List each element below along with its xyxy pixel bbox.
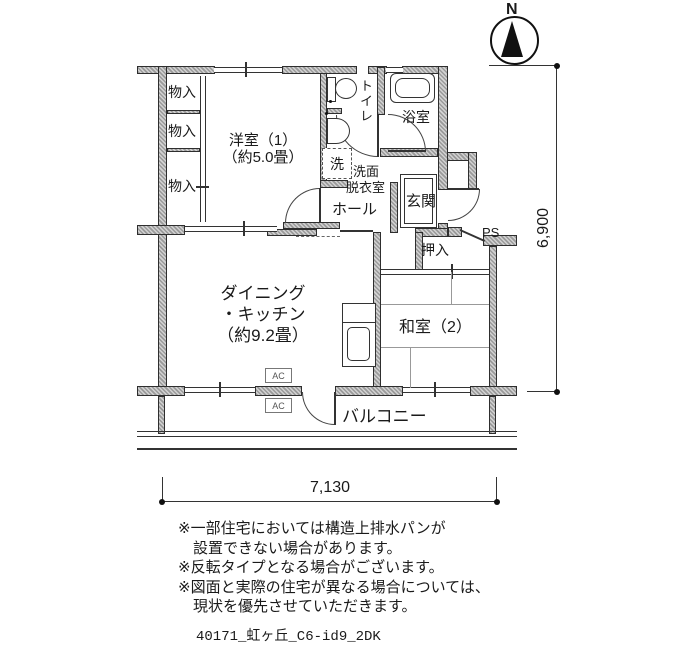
note-line: ※図面と実際の住宅が異なる場合については、 [178,578,490,598]
dk-line1: ダイニング [203,283,323,304]
note-line: ※反転タイプとなる場合がございます。 [178,558,490,578]
ac-lower-label: AC [272,401,285,411]
note-line: 現状を優先させていただきます。 [178,597,490,617]
entrance-label: 玄関 [406,193,436,210]
window-tick [245,62,247,77]
toilet-bowl [335,78,357,99]
storage3-label: 物入 [168,178,196,194]
window-tick [219,382,221,397]
balcony-post [489,396,496,434]
sliding-door [283,222,340,229]
dimension-width-label: 7,130 [290,479,370,497]
storage2-label: 物入 [168,123,196,139]
dimension-line-right [556,66,557,392]
notes-block: ※一部住宅においては構造上排水パンが 設置できない場合があります。 ※反転タイプ… [178,519,490,617]
door-leaf [388,150,426,152]
dimension-line-bottom [162,501,497,502]
wall [137,66,215,74]
bathtub-inner [395,78,430,98]
hall-label: ホール [332,201,377,218]
dimension-leader [527,391,557,392]
wall [377,67,385,115]
wall [470,386,517,396]
balcony-label: バルコニー [342,407,427,427]
wall [137,386,185,396]
floor-plan: N [0,0,700,650]
wall [489,246,497,388]
toilet-label: トイレ [357,79,372,124]
japanese-room-label: 和室（2） [399,319,472,337]
wall [335,386,403,396]
dimension-dot [494,499,500,505]
balcony-rail-line [137,431,517,432]
window-tick [434,382,436,397]
toilet-handle [329,100,332,103]
lintel-dashed-line [296,236,340,237]
closet-divider [167,110,200,114]
washroom-label-line2: 脱衣室 [346,181,385,196]
washbasin-faucet [325,112,328,115]
laundry-pan: 洗 [322,148,352,179]
window [403,387,470,393]
western-room-size: （約5.0畳） [205,149,321,166]
wall-line [340,230,373,232]
storage1-label: 物入 [168,84,196,100]
dimension-height-label: 6,900 [535,202,553,254]
drawing-id-footer: 40171_虹ヶ丘_C6-id9_2DK [196,629,381,645]
dimension-dot [159,499,165,505]
western-room-name: 洋室（1） [205,132,321,149]
kitchen-sink [347,327,370,361]
window-tick [196,186,209,188]
dimension-leader [489,65,557,66]
tatami-line [381,347,489,348]
wall [320,180,348,188]
wall [137,225,185,235]
oshiire-label: 押入 [421,242,449,258]
door-arc-balcony [302,392,335,425]
tatami-line [410,347,411,388]
compass-needle-icon [501,21,523,57]
wall [327,108,342,114]
laundry-label: 洗 [330,154,344,174]
ac-box-upper: AC [265,368,292,383]
window [214,67,282,73]
closet-sliding-door [200,76,201,222]
door-leaf [377,115,379,157]
western-room-label: 洋室（1） （約5.0畳） [205,132,321,166]
door-arc-entrance [448,189,480,221]
window-tick [243,221,245,236]
door-leaf [448,188,479,190]
dimension-dot [554,389,560,395]
ac-box-lower: AC [265,398,292,413]
wall [255,386,302,396]
dimension-dot [554,63,560,69]
wall [390,182,398,233]
door-leaf [334,392,336,425]
wall [438,66,448,190]
ac-upper-label: AC [272,371,285,381]
ps-label: PS [482,226,499,241]
door-leaf [319,188,321,223]
tatami-line [381,304,489,305]
balcony-rail-line [137,436,517,437]
note-line: ※一部住宅においては構造上排水パンが [178,519,490,539]
window [185,226,277,232]
tatami-line [451,272,452,304]
closet-divider [167,148,200,152]
door-arc-western-room [285,188,320,223]
balcony-post [158,396,165,434]
dining-kitchen-label: ダイニング ・キッチン （約9.2畳） [203,283,323,346]
washroom-label-line1: 洗面 [353,165,379,180]
bath-label: 浴室 [402,109,430,125]
balcony-outer-line [137,448,517,450]
note-line: 設置できない場合があります。 [178,539,490,559]
kitchen-counter-divider [342,322,376,323]
dk-line3: （約9.2畳） [203,325,323,346]
oshiire-sliding-door [381,269,489,275]
dk-line2: ・キッチン [203,304,323,325]
wall [468,152,477,190]
